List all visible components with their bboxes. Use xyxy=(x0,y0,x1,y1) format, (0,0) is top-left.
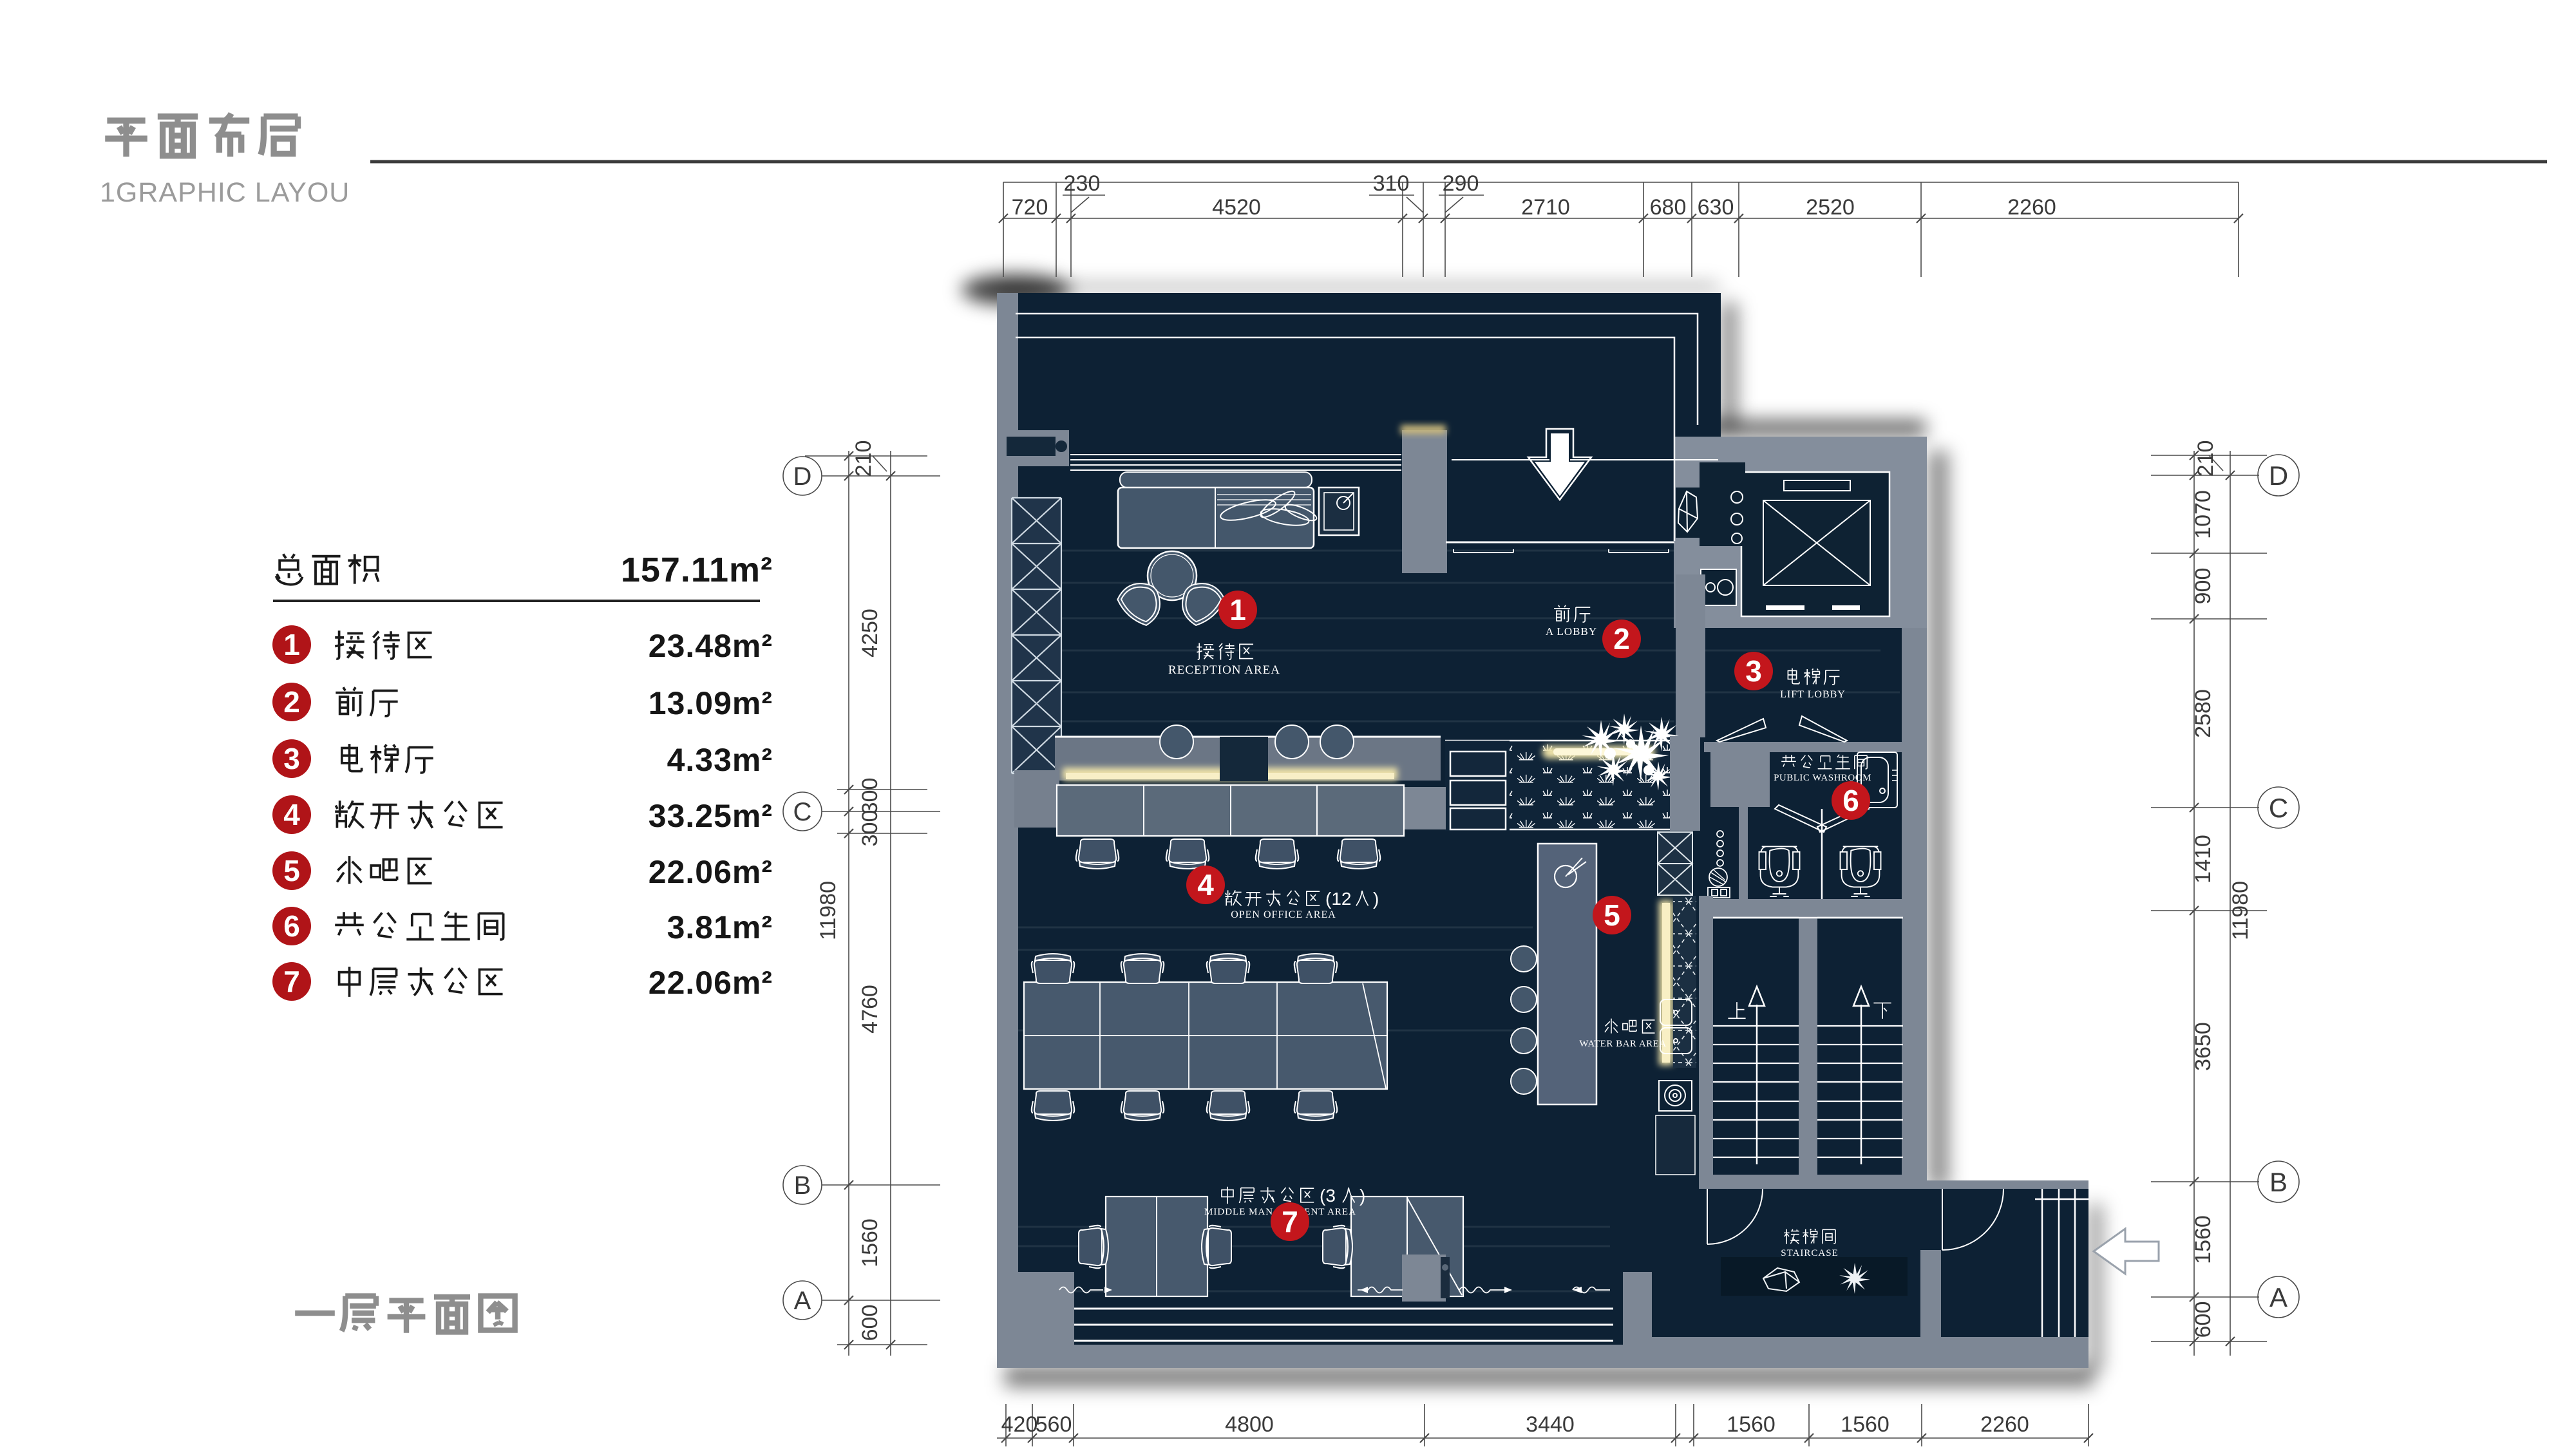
svg-text:33.25m²: 33.25m² xyxy=(649,798,773,834)
svg-text:4: 4 xyxy=(283,798,300,831)
svg-text:A LOBBY: A LOBBY xyxy=(1546,625,1597,638)
svg-text:4250: 4250 xyxy=(858,609,882,658)
svg-text:1560: 1560 xyxy=(1727,1412,1776,1437)
svg-text:4760: 4760 xyxy=(858,985,882,1034)
svg-text:300: 300 xyxy=(858,778,882,815)
svg-text:900: 900 xyxy=(2191,568,2215,605)
svg-text:22.06m²: 22.06m² xyxy=(649,965,773,1001)
svg-text:720: 720 xyxy=(1012,195,1048,220)
svg-text:157.11m²: 157.11m² xyxy=(621,551,773,589)
svg-text:13.09m²: 13.09m² xyxy=(649,685,773,721)
svg-text:1560: 1560 xyxy=(1841,1412,1889,1437)
svg-text:1070: 1070 xyxy=(2191,490,2215,539)
svg-text:210: 210 xyxy=(2193,440,2218,477)
svg-text:11980: 11980 xyxy=(2228,881,2253,940)
svg-text:): ) xyxy=(1359,1186,1365,1206)
svg-text:4800: 4800 xyxy=(1225,1412,1274,1437)
svg-text:630: 630 xyxy=(1698,195,1734,220)
svg-text:1: 1 xyxy=(283,628,300,661)
svg-text:WATER BAR AREA: WATER BAR AREA xyxy=(1579,1039,1666,1049)
svg-text:(3: (3 xyxy=(1320,1186,1336,1206)
svg-text:600: 600 xyxy=(2191,1302,2215,1338)
svg-text:4: 4 xyxy=(1197,868,1214,902)
svg-text:C: C xyxy=(2269,793,2288,823)
svg-text:3440: 3440 xyxy=(1526,1412,1575,1437)
svg-text:2: 2 xyxy=(1613,622,1630,656)
svg-text:1410: 1410 xyxy=(2191,835,2215,884)
svg-text:600: 600 xyxy=(858,1305,882,1341)
svg-text:23.48m²: 23.48m² xyxy=(649,628,773,664)
svg-text:4.33m²: 4.33m² xyxy=(667,742,773,778)
svg-text:A: A xyxy=(794,1287,811,1315)
svg-text:2710: 2710 xyxy=(1521,195,1570,220)
svg-text:6: 6 xyxy=(1842,784,1859,817)
svg-text:STAIRCASE: STAIRCASE xyxy=(1781,1248,1838,1258)
svg-text:560: 560 xyxy=(1036,1412,1072,1437)
svg-text:A: A xyxy=(2269,1282,2287,1312)
svg-text:5: 5 xyxy=(1604,898,1620,932)
svg-text:B: B xyxy=(2269,1167,2287,1197)
svg-text:D: D xyxy=(2269,460,2288,491)
svg-text:2: 2 xyxy=(283,685,300,719)
svg-text:22.06m²: 22.06m² xyxy=(649,854,773,890)
svg-text:1560: 1560 xyxy=(2191,1215,2215,1264)
svg-text:D: D xyxy=(793,462,812,491)
svg-text:PUBLIC WASHROOM: PUBLIC WASHROOM xyxy=(1774,773,1871,783)
svg-text:11980: 11980 xyxy=(816,881,840,940)
svg-text:7: 7 xyxy=(283,965,300,998)
svg-text:C: C xyxy=(793,798,812,826)
svg-text:2260: 2260 xyxy=(1980,1412,2029,1437)
svg-text:6: 6 xyxy=(283,909,300,943)
svg-text:2520: 2520 xyxy=(1806,195,1855,220)
svg-text:OPEN OFFICE AREA: OPEN OFFICE AREA xyxy=(1231,909,1336,920)
svg-text:420: 420 xyxy=(1001,1412,1038,1437)
svg-text:230: 230 xyxy=(1064,171,1101,196)
svg-text:3: 3 xyxy=(283,742,300,775)
svg-text:290: 290 xyxy=(1443,171,1479,196)
svg-text:680: 680 xyxy=(1650,195,1687,220)
svg-text:1560: 1560 xyxy=(858,1218,882,1267)
svg-text:RECEPTION AREA: RECEPTION AREA xyxy=(1168,663,1280,677)
svg-text:LIFT LOBBY: LIFT LOBBY xyxy=(1780,689,1846,700)
svg-text:4520: 4520 xyxy=(1212,195,1261,220)
svg-text:7: 7 xyxy=(1282,1205,1298,1238)
svg-text:310: 310 xyxy=(1373,171,1410,196)
svg-text:2580: 2580 xyxy=(2191,689,2215,738)
svg-text:3650: 3650 xyxy=(2191,1022,2215,1071)
svg-text:1: 1 xyxy=(1229,593,1246,627)
svg-text:3: 3 xyxy=(1745,654,1762,688)
svg-text:210: 210 xyxy=(851,440,876,477)
svg-text:B: B xyxy=(794,1171,811,1200)
svg-text:300: 300 xyxy=(858,810,882,847)
svg-text:1GRAPHIC LAYOU: 1GRAPHIC LAYOU xyxy=(100,177,350,208)
svg-text:5: 5 xyxy=(283,854,300,887)
svg-text:3.81m²: 3.81m² xyxy=(667,909,773,945)
svg-text:2260: 2260 xyxy=(2007,195,2056,220)
svg-text:(12: (12 xyxy=(1325,889,1351,909)
svg-text:): ) xyxy=(1373,889,1379,909)
